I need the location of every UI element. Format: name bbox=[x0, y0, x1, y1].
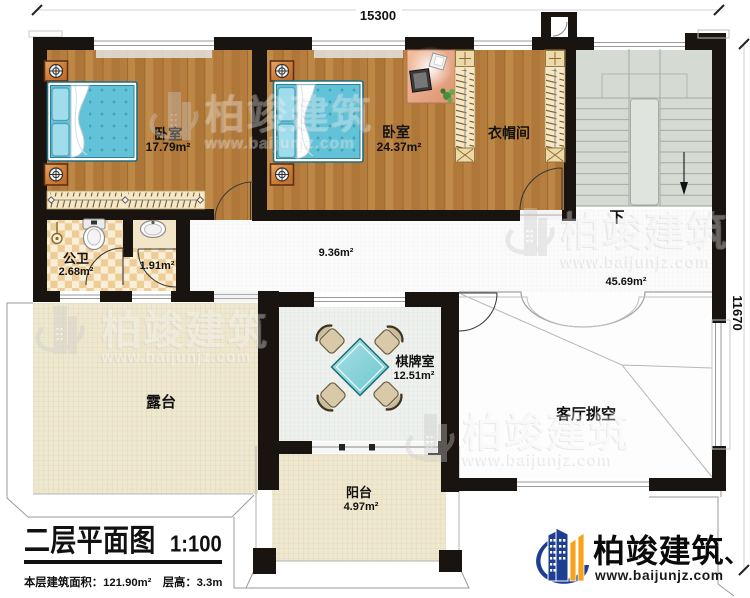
svg-text:阳台: 阳台 bbox=[346, 485, 372, 500]
svg-text:2.68m²: 2.68m² bbox=[59, 266, 94, 278]
svg-text:11670: 11670 bbox=[730, 295, 745, 330]
svg-text:www.baijunjz.com: www.baijunjz.com bbox=[594, 568, 724, 583]
svg-text:柏竣建筑: 柏竣建筑 bbox=[561, 210, 729, 254]
svg-text:12.51m²: 12.51m² bbox=[394, 370, 435, 382]
svg-text:45.69m²: 45.69m² bbox=[606, 276, 647, 288]
svg-text:15300: 15300 bbox=[360, 8, 396, 23]
svg-text:柏竣建筑: 柏竣建筑 bbox=[463, 411, 631, 455]
svg-text:www.baijunjz.com: www.baijunjz.com bbox=[462, 452, 613, 469]
svg-text:4.97m²: 4.97m² bbox=[344, 501, 379, 513]
svg-text:衣帽间: 衣帽间 bbox=[488, 125, 530, 141]
svg-text:www.baijunjz.com: www.baijunjz.com bbox=[204, 135, 355, 152]
svg-text:卧室: 卧室 bbox=[382, 124, 410, 140]
svg-text:17.79m²: 17.79m² bbox=[146, 140, 191, 154]
svg-text:1:100: 1:100 bbox=[170, 530, 222, 557]
svg-text:本层建筑面积：121.90m² 层高：3.3m: 本层建筑面积：121.90m² 层高：3.3m bbox=[24, 575, 222, 589]
svg-text:www.baijunjz.com: www.baijunjz.com bbox=[100, 349, 251, 366]
svg-text:www.baijunjz.com: www.baijunjz.com bbox=[560, 254, 711, 271]
svg-text:柏竣建筑: 柏竣建筑 bbox=[101, 309, 269, 353]
svg-text:露台: 露台 bbox=[146, 393, 176, 411]
svg-text:9.36m²: 9.36m² bbox=[319, 247, 354, 259]
svg-text:公卫: 公卫 bbox=[63, 251, 89, 266]
svg-text:二层平面图: 二层平面图 bbox=[24, 523, 156, 557]
svg-text:柏竣建筑: 柏竣建筑 bbox=[205, 93, 373, 137]
svg-text:1.91m²: 1.91m² bbox=[140, 260, 175, 272]
svg-text:24.37m²: 24.37m² bbox=[377, 140, 422, 154]
svg-text:棋牌室: 棋牌室 bbox=[394, 354, 434, 369]
